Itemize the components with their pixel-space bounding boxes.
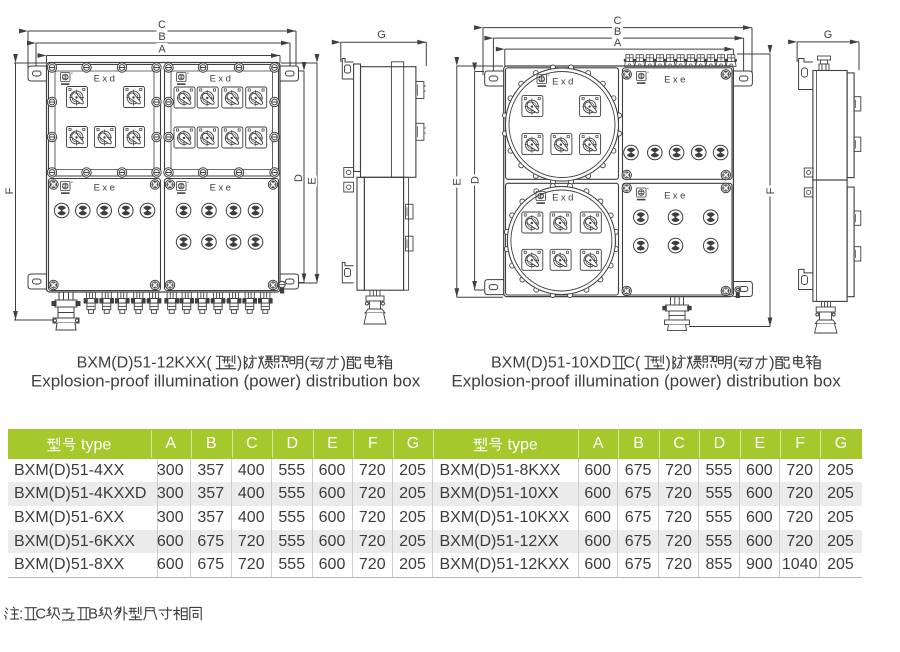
- svg-text:type: type: [503, 437, 538, 454]
- svg-text:C: C: [158, 19, 166, 31]
- svg-text:B: B: [158, 31, 165, 43]
- svg-text:A: A: [158, 43, 166, 55]
- svg-text:BXM(D)51-10XD: BXM(D)51-10XD: [491, 355, 611, 372]
- svg-text:F: F: [765, 187, 777, 194]
- svg-text:Exe: Exe: [210, 183, 234, 194]
- svg-text:Exe: Exe: [664, 191, 688, 202]
- svg-text:): ): [341, 355, 346, 372]
- svg-text:): ): [237, 355, 242, 372]
- svg-text:E: E: [452, 178, 464, 185]
- svg-text:Exd: Exd: [94, 74, 118, 85]
- svg-text:B: B: [88, 606, 98, 623]
- svg-text:Exd: Exd: [552, 193, 576, 204]
- svg-text:Exd: Exd: [210, 74, 234, 85]
- svg-text:D: D: [293, 174, 305, 182]
- svg-text:C(: C(: [624, 355, 642, 372]
- svg-text:C: C: [35, 606, 46, 623]
- svg-text:G: G: [377, 29, 386, 41]
- svg-text:A: A: [614, 37, 622, 49]
- svg-text:BXM(D)51-12KXX(: BXM(D)51-12KXX(: [77, 355, 213, 372]
- svg-text:F: F: [4, 187, 16, 194]
- svg-text:Exd: Exd: [552, 77, 576, 88]
- svg-text:Exe: Exe: [94, 183, 118, 194]
- svg-text:G: G: [824, 29, 833, 41]
- svg-text:(: (: [733, 355, 739, 372]
- svg-text:Explosion-proof illumination (: Explosion-proof illumination (power) dis…: [31, 371, 421, 390]
- svg-text:Exe: Exe: [664, 75, 688, 86]
- svg-text:): ): [666, 355, 671, 372]
- svg-text:type: type: [77, 437, 112, 454]
- svg-text:D: D: [470, 176, 482, 184]
- svg-text:E: E: [306, 177, 318, 184]
- svg-text:(: (: [304, 355, 310, 372]
- svg-text:Explosion-proof illumination (: Explosion-proof illumination (power) dis…: [451, 371, 841, 390]
- svg-text::: :: [19, 606, 23, 623]
- svg-text:): ): [769, 355, 774, 372]
